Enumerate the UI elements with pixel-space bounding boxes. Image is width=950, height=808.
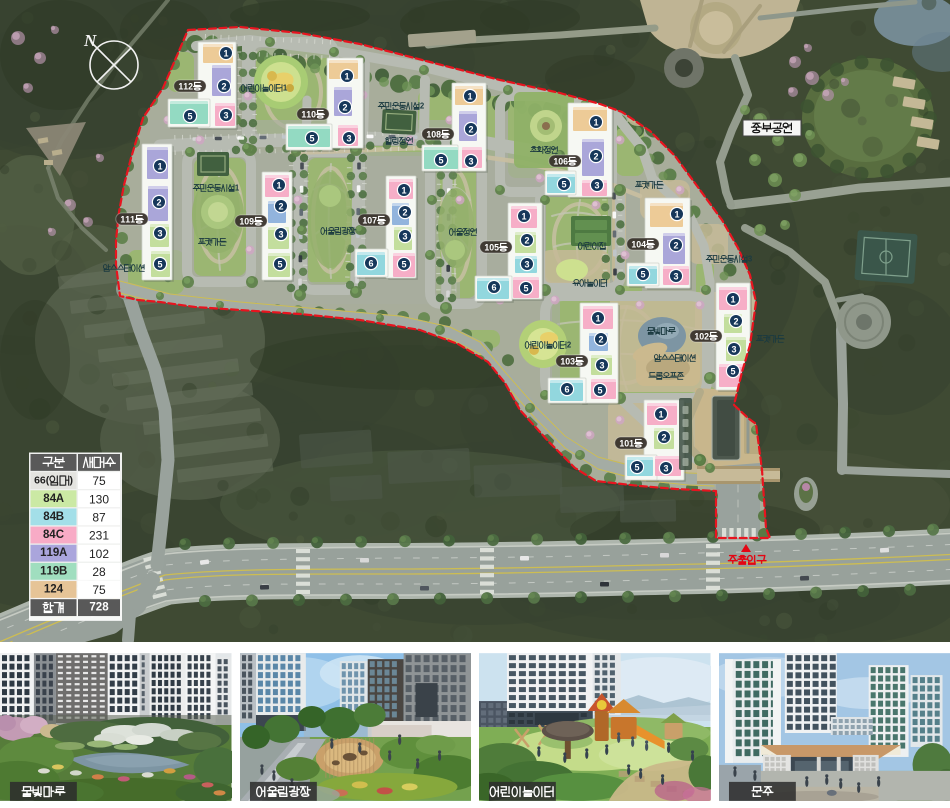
svg-text:1: 1 xyxy=(658,410,663,420)
svg-text:6: 6 xyxy=(563,156,568,166)
svg-text:3: 3 xyxy=(594,181,599,191)
svg-text:1: 1 xyxy=(674,210,679,220)
svg-text:8: 8 xyxy=(436,129,441,139)
svg-text:(: ( xyxy=(46,475,50,487)
svg-text:2: 2 xyxy=(420,102,425,111)
svg-text:6: 6 xyxy=(368,259,373,269)
svg-text:3: 3 xyxy=(157,229,162,239)
svg-text:3: 3 xyxy=(223,111,228,121)
svg-text:A: A xyxy=(59,547,67,559)
svg-text:2: 2 xyxy=(278,202,283,212)
svg-text:1: 1 xyxy=(235,184,240,193)
svg-text:B: B xyxy=(56,511,64,523)
svg-text:5: 5 xyxy=(187,112,192,122)
svg-text:3: 3 xyxy=(599,361,604,371)
svg-text:B: B xyxy=(59,565,67,577)
svg-text:3: 3 xyxy=(748,255,753,264)
svg-text:4: 4 xyxy=(641,239,646,249)
svg-text:2: 2 xyxy=(567,341,572,350)
svg-text:3: 3 xyxy=(570,356,575,366)
svg-text:5: 5 xyxy=(309,134,314,144)
svg-text:75: 75 xyxy=(92,474,106,488)
svg-text:1: 1 xyxy=(130,214,135,224)
svg-text:2: 2 xyxy=(342,103,347,113)
svg-text:5: 5 xyxy=(561,180,566,190)
svg-text:): ) xyxy=(69,475,73,487)
svg-text:5: 5 xyxy=(277,260,282,270)
svg-text:2: 2 xyxy=(524,236,529,246)
svg-text:3: 3 xyxy=(402,232,407,242)
svg-text:1: 1 xyxy=(283,84,288,93)
svg-text:3: 3 xyxy=(346,134,351,144)
svg-text:1: 1 xyxy=(595,314,600,324)
svg-text:5: 5 xyxy=(438,156,443,166)
svg-text:5: 5 xyxy=(157,260,162,270)
svg-text:5: 5 xyxy=(730,367,735,377)
svg-text:2: 2 xyxy=(468,125,473,135)
svg-text:2: 2 xyxy=(673,241,678,251)
svg-text:1: 1 xyxy=(467,92,472,102)
svg-text:2: 2 xyxy=(593,152,598,162)
svg-text:1: 1 xyxy=(276,181,281,191)
svg-text:2: 2 xyxy=(661,433,666,443)
svg-text:5: 5 xyxy=(523,284,528,294)
svg-text:2: 2 xyxy=(156,198,161,208)
svg-text:3: 3 xyxy=(468,157,473,167)
svg-text:2: 2 xyxy=(188,81,193,91)
svg-text:3: 3 xyxy=(278,230,283,240)
svg-text:1: 1 xyxy=(593,118,598,128)
svg-text:3: 3 xyxy=(731,345,736,355)
svg-text:6: 6 xyxy=(564,385,569,395)
svg-text:231: 231 xyxy=(89,529,109,543)
svg-text:28: 28 xyxy=(92,565,106,579)
svg-text:C: C xyxy=(56,529,64,541)
svg-text:1: 1 xyxy=(344,72,349,82)
svg-text:2: 2 xyxy=(704,331,709,341)
svg-text:2: 2 xyxy=(733,317,738,327)
svg-text:1: 1 xyxy=(629,438,634,448)
svg-text:5: 5 xyxy=(640,270,645,280)
svg-text:0: 0 xyxy=(311,109,316,119)
svg-text:1: 1 xyxy=(730,295,735,305)
svg-text:8: 8 xyxy=(102,602,109,614)
svg-text:4: 4 xyxy=(57,584,64,596)
svg-text:6: 6 xyxy=(491,283,496,293)
svg-text:3: 3 xyxy=(673,272,678,282)
svg-text:130: 130 xyxy=(89,492,109,506)
svg-text:3: 3 xyxy=(663,464,668,474)
svg-text:5: 5 xyxy=(494,242,499,252)
svg-text:5: 5 xyxy=(401,260,406,270)
svg-text:1: 1 xyxy=(521,212,526,222)
svg-text:2: 2 xyxy=(402,208,407,218)
svg-text:75: 75 xyxy=(92,583,106,597)
svg-text:102: 102 xyxy=(89,547,109,561)
svg-text:7: 7 xyxy=(372,215,377,225)
svg-text:1: 1 xyxy=(157,162,162,172)
svg-text:2: 2 xyxy=(221,82,226,92)
svg-text:A: A xyxy=(56,493,64,505)
svg-text:9: 9 xyxy=(249,216,254,226)
svg-text:5: 5 xyxy=(634,463,639,473)
svg-text:N: N xyxy=(83,31,97,50)
svg-text:87: 87 xyxy=(92,511,106,525)
svg-text:1: 1 xyxy=(401,186,406,196)
svg-text:2: 2 xyxy=(598,335,603,345)
svg-text:5: 5 xyxy=(597,386,602,396)
svg-text:1: 1 xyxy=(223,49,228,59)
svg-text:3: 3 xyxy=(524,260,529,270)
